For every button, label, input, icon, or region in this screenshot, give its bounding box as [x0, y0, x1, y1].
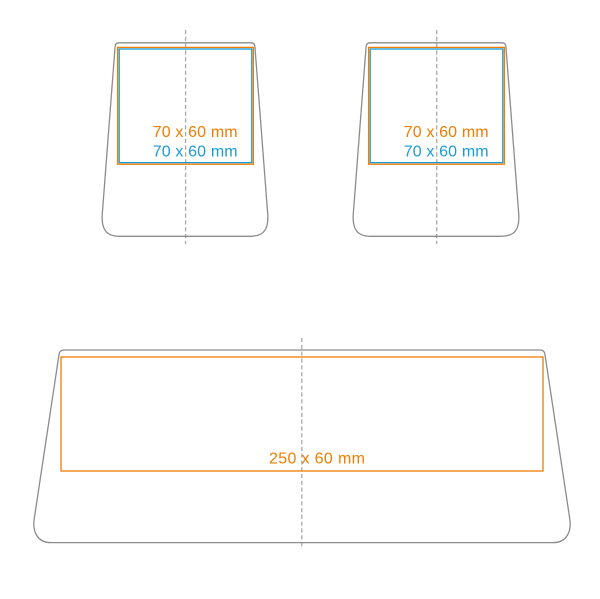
svg-text:70 x 60 mm: 70 x 60 mm — [153, 143, 238, 160]
svg-text:250 x 60 mm: 250 x 60 mm — [269, 451, 365, 468]
svg-text:70 x 60 mm: 70 x 60 mm — [404, 124, 489, 141]
svg-text:70 x 60 mm: 70 x 60 mm — [153, 124, 238, 141]
svg-text:70 x 60 mm: 70 x 60 mm — [404, 143, 489, 160]
